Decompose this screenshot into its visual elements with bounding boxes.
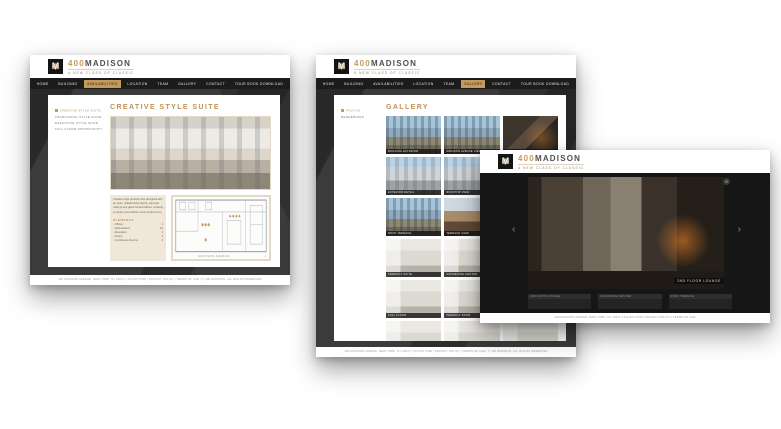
page-body: CREATIVE STYLE SUITETRADITIONAL STYLE SU… <box>30 89 290 275</box>
brand-text[interactable]: 400MADISON A NEW CLASS OF CLASSIC <box>354 59 420 75</box>
sidebar-link[interactable]: EXECUTIVE STYLE SUITE <box>55 122 107 126</box>
brand-text[interactable]: 400MADISON A NEW CLASS OF CLASSIC <box>68 59 134 75</box>
brand-number: 400 <box>354 59 371 68</box>
elements-heading: ELEMENTS <box>113 218 163 222</box>
brand-tagline: A NEW CLASS OF CLASSIC <box>518 164 584 170</box>
thumbnail-caption: FULL FLOOR <box>386 313 441 318</box>
sidebar-link[interactable]: PHOTOS <box>341 109 393 113</box>
brand-tagline: A NEW CLASS OF CLASSIC <box>68 69 134 75</box>
thumbnail-caption: BUILDING EXTERIOR <box>386 149 441 154</box>
suite-details: Creative style prebuilt suite designed w… <box>110 195 271 261</box>
brand-monogram-icon[interactable]: M <box>48 59 63 74</box>
gallery-thumbnail[interactable]: MADISON AVENUE VIEW <box>444 116 499 154</box>
sidebar-link[interactable]: TRADITIONAL STYLE SUITE <box>55 116 107 120</box>
main-nav: HOMEBUILDINGAVAILABILITIESLOCATIONTEAMGA… <box>316 78 576 89</box>
nav-item[interactable]: GALLERY <box>175 80 199 88</box>
thumbnail-caption: PREBUILT SUITE <box>386 272 441 277</box>
floor-plan-drawing <box>175 199 267 257</box>
nav-item[interactable]: LOCATION <box>410 80 436 88</box>
nav-item[interactable]: BUILDING <box>341 80 366 88</box>
gallery-thumbnail[interactable]: SUITE 700 <box>444 321 499 341</box>
nav-item[interactable]: TEAM <box>440 80 457 88</box>
nav-item[interactable]: TEAM <box>154 80 171 88</box>
monogram-letter: M <box>48 61 63 72</box>
brand-title: 400MADISON <box>518 154 584 163</box>
elements-list: Offices 1 Workstations 22 Rece <box>113 223 163 243</box>
suite-info-box: Creative style prebuilt suite designed w… <box>110 195 166 261</box>
nav-item[interactable]: LOCATION <box>124 80 150 88</box>
lightbox-thumbnail-caption: ROOF TERRACE <box>669 294 732 299</box>
gallery-thumbnail[interactable]: SUITE 600 <box>386 321 441 341</box>
gallery-thumbnail[interactable]: FULL FLOOR <box>386 280 441 318</box>
lightbox-caption: 2ND FLOOR LOUNGE <box>674 278 724 284</box>
gallery-thumbnail[interactable]: BUILDING EXTERIOR <box>386 116 441 154</box>
gallery-thumbnail[interactable]: EXTERIOR DETAIL <box>386 157 441 195</box>
lightbox-overlay: ✕ ‹ › 2ND FLOOR LOUNGE 2ND FLOOR LOUNGE … <box>480 173 770 313</box>
sidebar-link[interactable]: FULL FLOOR OPPORTUNITY <box>55 128 107 132</box>
nav-item[interactable]: CONTACT <box>489 80 514 88</box>
prev-arrow-icon[interactable]: ‹ <box>512 225 515 235</box>
close-icon[interactable]: ✕ <box>723 178 730 185</box>
nav-item[interactable]: GALLERY <box>461 80 485 88</box>
site-footer: 400 MADISON AVENUE, NEW YORK, NY 10017 |… <box>30 275 290 285</box>
lightbox-photo <box>528 177 724 289</box>
monogram-letter: M <box>498 156 513 167</box>
page-title: CREATIVE STYLE SUITE <box>110 104 271 111</box>
element-value: 2 <box>162 239 164 243</box>
next-arrow-icon[interactable]: › <box>738 225 741 235</box>
suite-photo <box>110 116 271 190</box>
compass-arrow-icon: → <box>262 253 267 259</box>
site-footer: 400 MADISON AVENUE, NEW YORK, NY 10017 |… <box>316 347 576 357</box>
content-card: CREATIVE STYLE SUITETRADITIONAL STYLE SU… <box>48 95 280 267</box>
gallery-thumbnail[interactable]: SUITE 800 <box>503 321 558 341</box>
page-title: GALLERY <box>386 104 558 111</box>
gallery-thumbnail[interactable]: PREBUILT SUITE <box>386 239 441 277</box>
nav-item[interactable]: AVAILABILITIES <box>84 80 121 88</box>
brand-tagline: A NEW CLASS OF CLASSIC <box>354 69 420 75</box>
site-footer: 400 MADISON AVENUE, NEW YORK, NY 10017 |… <box>480 313 770 323</box>
nav-item[interactable]: AVAILABILITIES <box>370 80 407 88</box>
brand-monogram-icon[interactable]: M <box>334 59 349 74</box>
brand-number: 400 <box>68 59 85 68</box>
thumbnail-caption: EXTERIOR DETAIL <box>386 190 441 195</box>
nav-item[interactable]: CONTACT <box>203 80 228 88</box>
floor-plan[interactable]: MADISON AVENUE → <box>171 195 271 261</box>
brand-name: MADISON <box>371 59 417 68</box>
gallery-thumbnail[interactable]: BUILDING ENTRANCE <box>503 116 558 154</box>
mockup-canvas: M 400MADISON A NEW CLASS OF CLASSIC HOME… <box>0 0 781 429</box>
lightbox-thumbnail-caption: 2ND FLOOR LOUNGE <box>528 294 591 299</box>
nav-item[interactable]: HOME <box>320 80 338 88</box>
window-suite-page: M 400MADISON A NEW CLASS OF CLASSIC HOME… <box>30 55 290 285</box>
gallery-thumbnail[interactable]: ROOF TERRACE <box>386 198 441 236</box>
sidebar-link[interactable]: CREATIVE STYLE SUITE <box>55 109 107 113</box>
brand-title: 400MADISON <box>354 59 420 68</box>
suite-sidebar: CREATIVE STYLE SUITETRADITIONAL STYLE SU… <box>55 109 107 135</box>
site-header: M 400MADISON A NEW CLASS OF CLASSIC <box>480 150 770 173</box>
site-header: M 400MADISON A NEW CLASS OF CLASSIC <box>30 55 290 78</box>
lightbox-thumbnail[interactable]: 2ND FLOOR LOUNGE <box>528 294 591 309</box>
main-nav: HOMEBUILDINGAVAILABILITIESLOCATIONTEAMGA… <box>30 78 290 89</box>
brand-monogram-icon[interactable]: M <box>498 154 513 169</box>
nav-item[interactable]: TOUR BOOK DOWNLOAD <box>518 80 572 88</box>
lightbox-thumbnail-strip: 2ND FLOOR LOUNGE CONVENING CENTER ROOF T… <box>528 294 732 309</box>
element-row: Conference Rooms 2 <box>113 239 163 243</box>
nav-item[interactable]: BUILDING <box>55 80 80 88</box>
brand-name: MADISON <box>535 154 581 163</box>
thumbnail-caption: ROOF TERRACE <box>386 231 441 236</box>
lightbox-thumbnail[interactable]: CONVENING CENTER <box>598 294 661 309</box>
brand-text[interactable]: 400MADISON A NEW CLASS OF CLASSIC <box>518 154 584 170</box>
window-lightbox-page: M 400MADISON A NEW CLASS OF CLASSIC ✕ ‹ … <box>480 150 770 323</box>
lightbox-thumbnail-caption: CONVENING CENTER <box>598 294 661 299</box>
lightbox-thumbnail[interactable]: ROOF TERRACE <box>669 294 732 309</box>
site-header: M 400MADISON A NEW CLASS OF CLASSIC <box>316 55 576 78</box>
suite-description: Creative style prebuilt suite designed w… <box>113 198 163 215</box>
floor-plan-street-label: MADISON AVENUE <box>173 255 255 258</box>
nav-item[interactable]: TOUR BOOK DOWNLOAD <box>232 80 286 88</box>
nav-item[interactable]: HOME <box>34 80 52 88</box>
monogram-letter: M <box>334 61 349 72</box>
brand-name: MADISON <box>85 59 131 68</box>
brand-number: 400 <box>518 154 535 163</box>
brand-title: 400MADISON <box>68 59 134 68</box>
element-label: Conference Rooms <box>113 239 138 243</box>
